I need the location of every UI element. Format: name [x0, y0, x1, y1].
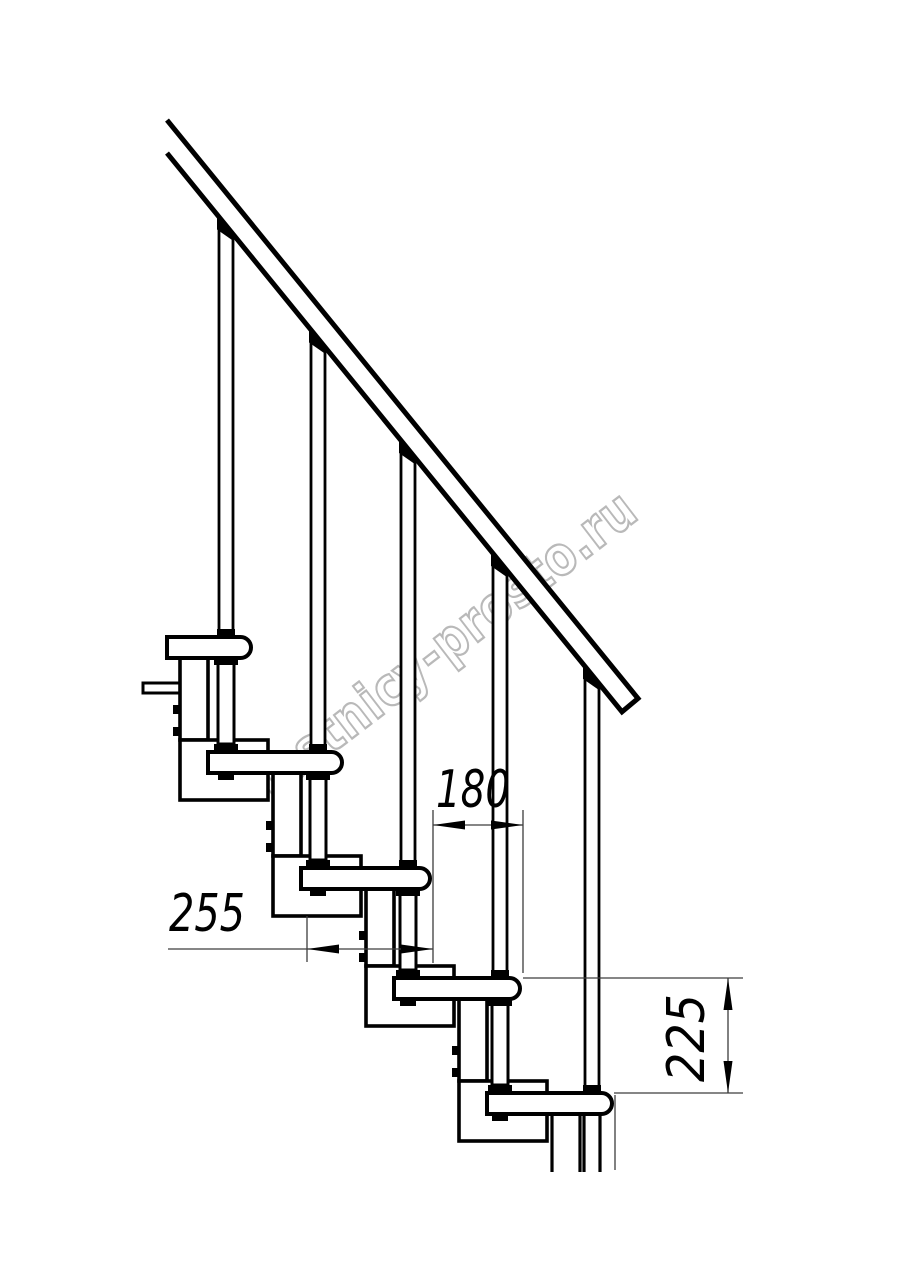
- support-column: [218, 658, 234, 744]
- tread: [301, 868, 430, 889]
- bolt-head: [359, 953, 366, 962]
- column-nut: [310, 889, 326, 896]
- tread: [394, 978, 520, 999]
- bolt-head: [359, 931, 366, 940]
- baluster-foot: [217, 629, 235, 637]
- technical-drawing-page: lestnicy-prosto.ru 255 180 225: [0, 0, 914, 1280]
- column-top-flange: [488, 999, 512, 1006]
- tread: [167, 637, 251, 658]
- support-column: [400, 889, 416, 970]
- module-plate: [180, 658, 208, 740]
- staircase-drawing: lestnicy-prosto.ru 255 180 225: [0, 0, 914, 1280]
- dim-255-label: 255: [169, 884, 245, 944]
- baluster: [311, 341, 325, 752]
- dim-180-label: 180: [436, 760, 510, 820]
- column-top-flange: [214, 658, 238, 665]
- column-foot: [488, 1085, 512, 1093]
- dimension-arrow: [724, 1061, 733, 1093]
- baluster: [585, 677, 599, 1093]
- dim-225-label: 225: [657, 994, 717, 1082]
- column-top-flange: [396, 889, 420, 896]
- column-foot: [306, 860, 330, 868]
- baluster-foot: [309, 744, 327, 752]
- bolt-head: [452, 1068, 459, 1077]
- support-column: [492, 999, 508, 1085]
- tread: [208, 752, 342, 773]
- module-plate: [366, 889, 394, 966]
- baluster: [219, 228, 233, 637]
- module-plate: [273, 773, 301, 856]
- bolt-head: [173, 705, 180, 714]
- baluster-foot: [491, 970, 509, 978]
- bolt-head: [173, 727, 180, 736]
- column-top-flange: [306, 773, 330, 780]
- dimension-arrow: [433, 821, 465, 830]
- column-foot: [214, 744, 238, 752]
- bolt-head: [266, 843, 273, 852]
- module-plate: [459, 999, 487, 1081]
- dimension-arrow: [307, 945, 339, 954]
- column-nut: [400, 999, 416, 1006]
- bolt-head: [266, 821, 273, 830]
- column-nut: [218, 773, 234, 780]
- tread: [487, 1093, 612, 1114]
- baluster-foot: [399, 860, 417, 868]
- baluster: [401, 451, 415, 868]
- bracket-tab: [143, 683, 180, 693]
- baluster-foot: [583, 1085, 601, 1093]
- dimension-arrow: [724, 978, 733, 1010]
- support-column: [310, 773, 326, 860]
- column-foot: [396, 970, 420, 978]
- column-nut: [492, 1114, 508, 1121]
- bolt-head: [452, 1046, 459, 1055]
